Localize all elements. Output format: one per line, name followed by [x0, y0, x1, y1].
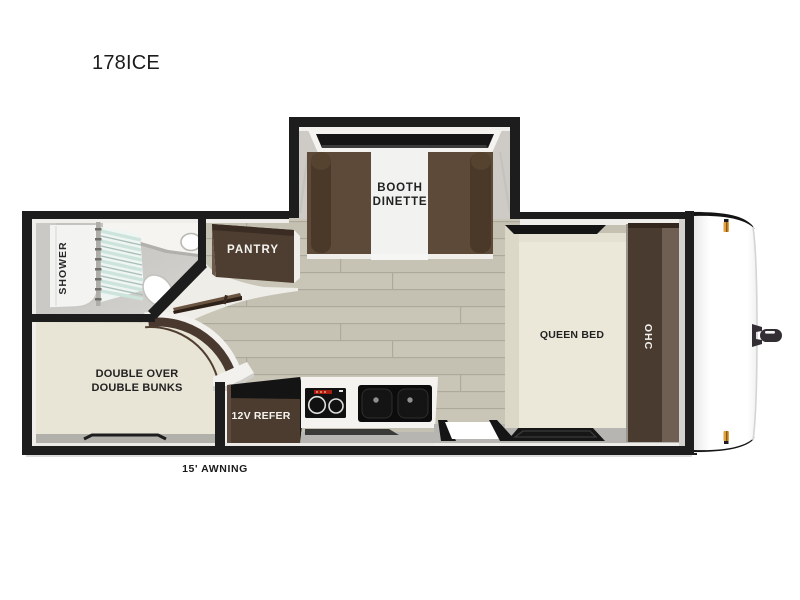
svg-text:PANTRY: PANTRY	[227, 244, 279, 256]
svg-text:178ICE: 178ICE	[92, 52, 160, 74]
svg-text:15' AWNING: 15' AWNING	[182, 463, 248, 475]
svg-text:12V REFER: 12V REFER	[232, 410, 291, 422]
svg-text:OHC: OHC	[642, 324, 654, 350]
svg-text:DOUBLE BUNKS: DOUBLE BUNKS	[91, 382, 182, 394]
svg-text:BOOTH: BOOTH	[377, 182, 423, 194]
svg-text:DOUBLE OVER: DOUBLE OVER	[96, 368, 179, 380]
svg-text:SHOWER: SHOWER	[57, 241, 69, 294]
svg-text:DINETTE: DINETTE	[373, 196, 428, 208]
svg-text:QUEEN BED: QUEEN BED	[540, 329, 604, 341]
